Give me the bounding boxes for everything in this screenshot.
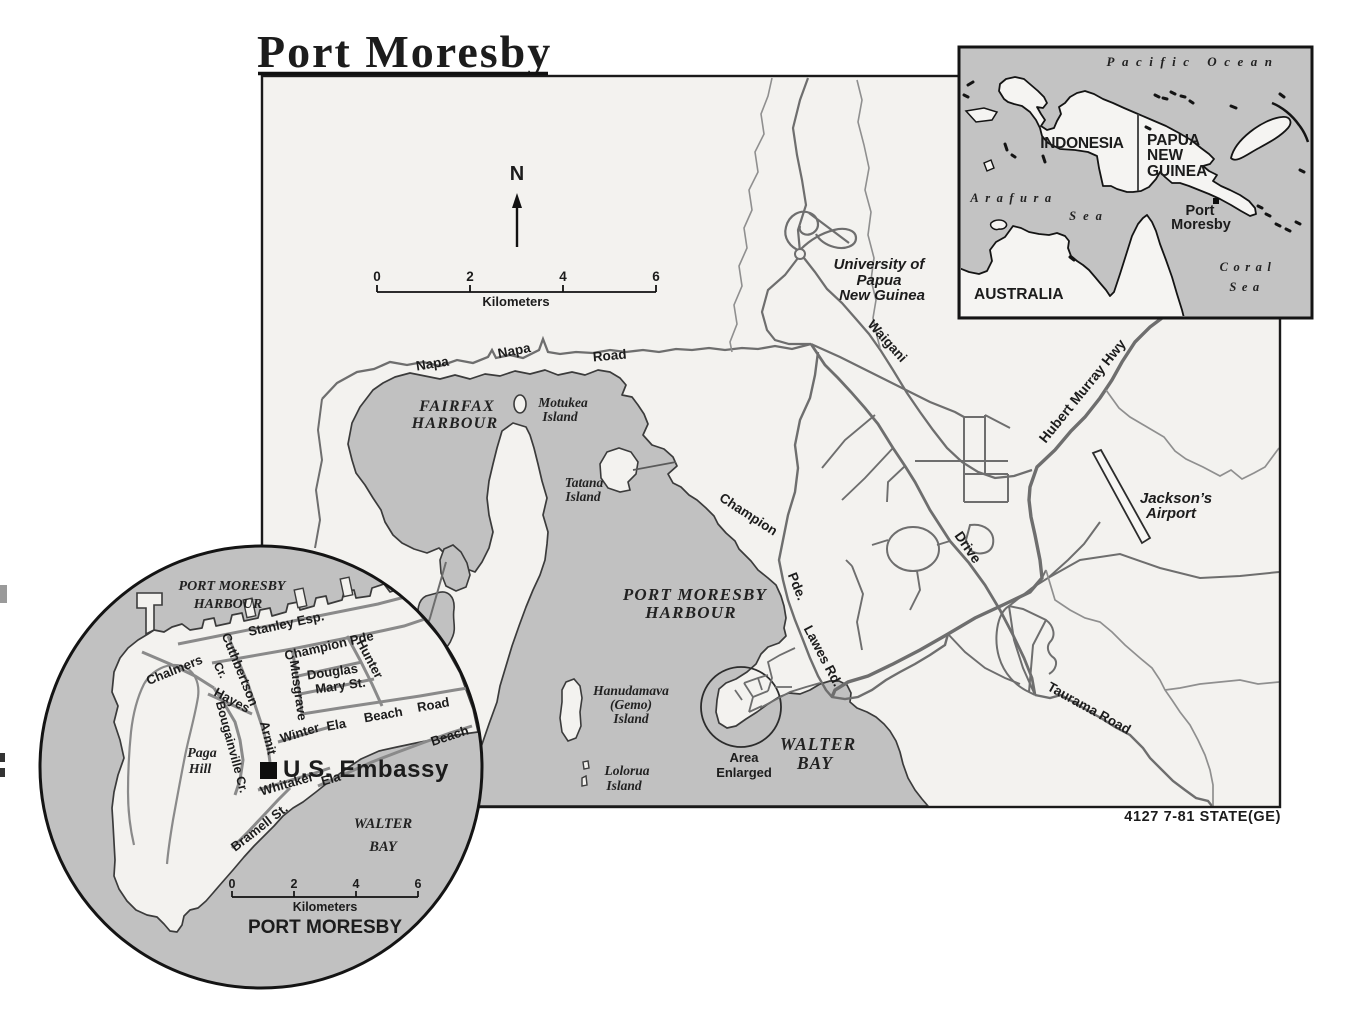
svg-text:4: 4 (353, 877, 360, 891)
svg-text:6: 6 (415, 877, 422, 891)
svg-text:Lolorua: Lolorua (603, 763, 649, 778)
svg-text:Kilometers: Kilometers (293, 900, 358, 914)
svg-text:Area: Area (730, 750, 760, 765)
svg-text:0: 0 (373, 269, 381, 284)
svg-text:Arafura: Arafura (969, 191, 1057, 205)
svg-text:Sea: Sea (1229, 280, 1264, 294)
svg-text:(Gemo): (Gemo) (610, 697, 652, 712)
svg-text:Airport: Airport (1145, 505, 1197, 522)
svg-text:NEW: NEW (1147, 147, 1184, 164)
svg-text:N: N (510, 163, 524, 185)
svg-text:HARBOUR: HARBOUR (411, 415, 499, 432)
svg-text:4: 4 (559, 269, 567, 284)
svg-text:2: 2 (466, 269, 474, 284)
svg-text:Island: Island (612, 711, 649, 726)
svg-text:U.S. Embassy: U.S. Embassy (283, 756, 449, 783)
svg-text:Island: Island (605, 778, 642, 793)
svg-text:HARBOUR: HARBOUR (644, 603, 737, 622)
svg-text:WALTER: WALTER (780, 734, 856, 754)
svg-text:6: 6 (652, 269, 660, 284)
svg-text:WALTER: WALTER (354, 816, 413, 832)
svg-text:BAY: BAY (368, 839, 398, 855)
svg-text:Hanudamava: Hanudamava (592, 683, 669, 698)
svg-text:University of: University of (834, 256, 927, 273)
svg-text:Pacific Ocean: Pacific Ocean (1107, 54, 1280, 69)
svg-text:Road: Road (592, 347, 627, 365)
svg-text:Coral: Coral (1220, 260, 1277, 274)
svg-text:Tatana: Tatana (565, 475, 604, 490)
svg-text:Paga: Paga (187, 746, 217, 761)
svg-text:FAIRFAX: FAIRFAX (418, 398, 495, 415)
svg-text:Hill: Hill (188, 762, 212, 777)
svg-text:AUSTRALIA: AUSTRALIA (974, 286, 1064, 303)
svg-text:Island: Island (564, 489, 601, 504)
svg-text:INDONESIA: INDONESIA (1040, 135, 1124, 152)
svg-text:Motukea: Motukea (537, 395, 588, 410)
svg-text:BAY: BAY (796, 753, 834, 773)
svg-text:2: 2 (291, 877, 298, 891)
svg-text:Moresby: Moresby (1171, 217, 1231, 233)
svg-text:Enlarged: Enlarged (716, 765, 772, 780)
svg-text:4127 7-81 STATE(GE): 4127 7-81 STATE(GE) (1124, 809, 1281, 825)
svg-text:HARBOUR: HARBOUR (193, 597, 262, 612)
svg-text:0: 0 (229, 877, 236, 891)
svg-text:PORT MORESBY: PORT MORESBY (248, 917, 402, 938)
svg-text:Port Moresby: Port Moresby (257, 26, 552, 77)
svg-text:PORT MORESBY: PORT MORESBY (179, 579, 287, 594)
svg-text:New Guinea: New Guinea (839, 287, 925, 304)
svg-text:Kilometers: Kilometers (482, 294, 549, 309)
svg-text:PORT MORESBY: PORT MORESBY (622, 585, 768, 604)
svg-text:GUINEA: GUINEA (1147, 163, 1207, 180)
svg-text:Island: Island (541, 409, 578, 424)
svg-text:Sea: Sea (1069, 209, 1109, 223)
